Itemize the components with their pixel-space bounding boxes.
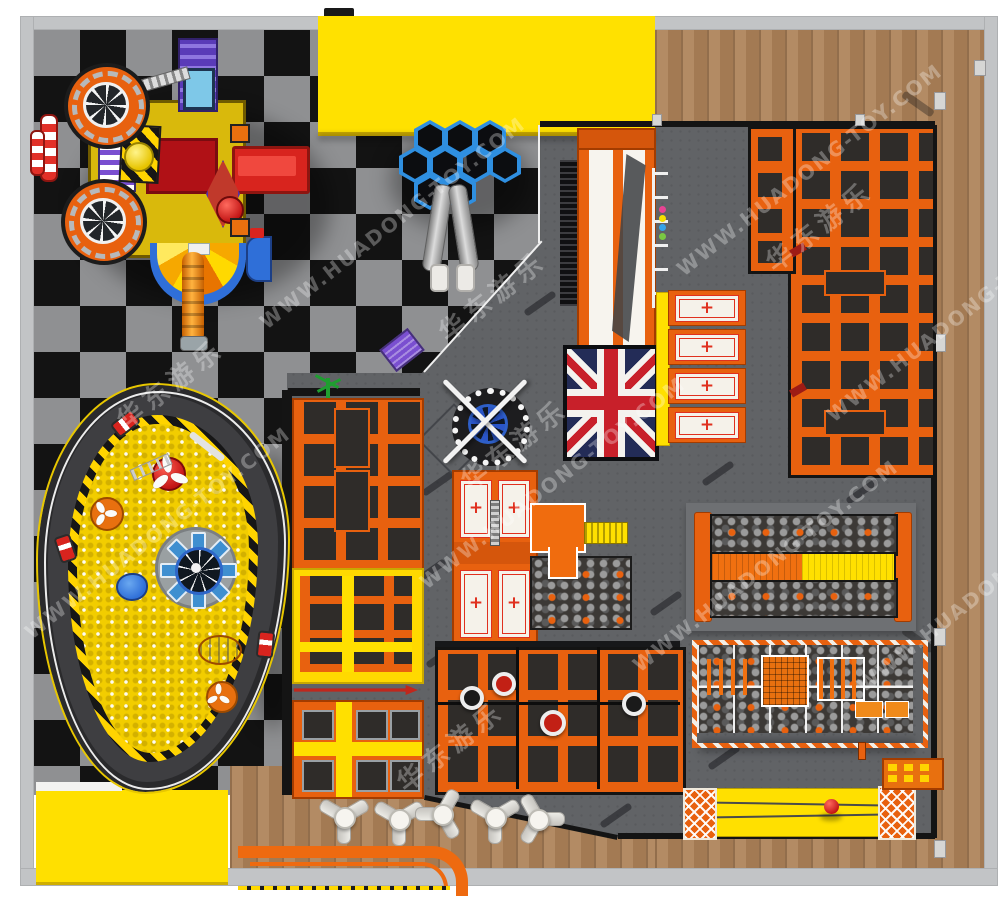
tube-cap — [180, 336, 208, 351]
fence-tick — [652, 172, 668, 175]
airbag-beds: + + + + — [452, 470, 538, 649]
wall-bed: + — [668, 290, 746, 326]
bed-surface: + — [675, 412, 739, 439]
court-line — [516, 647, 519, 789]
petal — [218, 694, 231, 705]
bed — [302, 710, 334, 740]
fence — [652, 168, 655, 308]
section-b-beds — [300, 576, 412, 672]
petal — [151, 472, 171, 490]
obstacle-pad — [855, 701, 883, 718]
cargo-net-panel — [761, 655, 809, 707]
foam-lane — [710, 514, 898, 556]
fence-tick — [652, 244, 668, 247]
wall-right — [984, 16, 998, 886]
jump-platform-stem — [548, 547, 578, 579]
yellow-cross-bar — [342, 576, 354, 672]
edge-tab — [855, 114, 865, 126]
toddler-train-playground — [28, 30, 318, 350]
dodgeball — [540, 710, 566, 736]
yellow-cross-bar — [294, 742, 422, 756]
petal — [216, 684, 222, 695]
trampoline-bed — [758, 241, 782, 263]
ladder — [490, 500, 500, 546]
lane-section-c — [292, 700, 424, 799]
slab-boundary-line — [538, 125, 540, 243]
pillar — [934, 840, 946, 858]
wheel-spokes — [83, 82, 129, 128]
post — [858, 742, 866, 760]
bumper-pod — [116, 573, 148, 601]
trampoline-lane-strip — [282, 378, 422, 798]
fence-tick — [652, 268, 668, 271]
wall-bed: + — [668, 329, 746, 365]
table-top — [432, 804, 454, 826]
main-grid-wing — [748, 126, 796, 274]
long-bed — [334, 470, 370, 532]
airbag-bed: + — [498, 570, 530, 638]
mushroom-seat — [206, 681, 238, 713]
table-top — [528, 809, 550, 831]
long-bed — [334, 408, 370, 468]
mini-slide-flag — [250, 228, 264, 238]
trampoline-bed — [758, 173, 782, 197]
petal — [105, 510, 117, 517]
balloon — [659, 215, 666, 222]
battle-beam-orange — [710, 552, 804, 582]
edge-tab — [652, 114, 662, 126]
foam-pit — [530, 556, 632, 630]
bed — [356, 710, 388, 740]
dodgeball — [460, 686, 484, 710]
party-block — [36, 790, 228, 885]
block — [230, 218, 250, 237]
mushroom-seat — [90, 497, 124, 531]
jump-platform — [530, 503, 586, 553]
giant-drop-slide — [556, 126, 672, 461]
caterpillar-seat — [198, 635, 242, 665]
hanging-strips — [707, 659, 747, 695]
edge-bar — [288, 388, 420, 396]
go-kart — [256, 630, 276, 659]
platform-stairs — [584, 522, 628, 544]
ninja-obstacle-course — [692, 640, 928, 748]
slide-stairs — [560, 160, 577, 306]
pillar — [934, 628, 946, 646]
wall-bed: + — [668, 368, 746, 404]
balloon — [659, 206, 666, 213]
cafe-table — [514, 795, 560, 841]
union-jack-landing-mat — [563, 345, 659, 461]
bed — [390, 760, 420, 792]
airbag-bed: + — [460, 480, 492, 538]
monkey-bars — [817, 657, 865, 701]
table-top — [334, 807, 356, 829]
bed — [390, 710, 420, 740]
cafe-table — [375, 795, 421, 841]
zipline-ball-shadow — [820, 813, 842, 821]
trampoline-bed — [758, 137, 782, 161]
zipline-tower — [878, 786, 916, 840]
dodgeball — [492, 672, 516, 696]
table-top — [485, 807, 507, 829]
arrow-bar — [294, 683, 418, 697]
climbing-wall — [882, 758, 944, 790]
balloon — [659, 233, 666, 240]
long-trampoline-bed — [824, 410, 886, 436]
bed-surface: + — [675, 295, 739, 322]
airbag-wall-beds: + + + + — [656, 290, 746, 446]
mini-slide-exit — [246, 236, 272, 282]
obstacle-pad — [885, 701, 909, 718]
petal — [94, 513, 106, 527]
slide-top-platform — [577, 128, 656, 150]
airbag-bed: + — [460, 570, 492, 638]
lane-section-b — [292, 568, 424, 684]
bed — [356, 760, 388, 792]
climbing-holds-row — [888, 764, 936, 771]
striped-arch — [30, 130, 45, 176]
zipline-runway — [712, 788, 882, 837]
zipline-tower — [683, 788, 717, 840]
train-wheel-rear — [61, 179, 147, 265]
ball-pit-with-go-kart-track — [38, 385, 288, 792]
cafe-table — [418, 790, 464, 836]
playground-floorplan-render: + + + + — [0, 0, 1000, 907]
red-slide-lane — [238, 156, 296, 176]
tube-mouth — [430, 264, 449, 292]
bed-surface: + — [675, 373, 739, 400]
train-wheel-front — [64, 63, 150, 149]
pillar — [934, 92, 946, 110]
cafe-table — [471, 793, 517, 839]
petal — [206, 694, 219, 705]
dodgeball — [622, 692, 646, 716]
block — [230, 124, 250, 143]
carousel-hub — [191, 563, 201, 573]
wall-bed: + — [668, 407, 746, 443]
hazard-edge-line — [238, 886, 450, 890]
honeycomb-climber — [394, 112, 514, 302]
wheel-spokes — [80, 198, 126, 244]
tube-mouth — [456, 264, 475, 292]
long-trampoline-bed — [824, 270, 886, 296]
table-top — [389, 809, 411, 831]
zipline-ball — [824, 799, 839, 814]
cafe-table — [320, 793, 366, 839]
foam-pit-battle-beam — [686, 503, 916, 631]
bed-surface: + — [675, 334, 739, 361]
yellow-cross-bar — [300, 642, 412, 652]
foam-lane — [710, 578, 898, 618]
balloon — [659, 224, 666, 231]
climbing-holds-row — [888, 775, 936, 782]
trampoline-bed — [758, 209, 782, 233]
court-line — [597, 647, 600, 789]
curved-bench-inner — [250, 862, 448, 888]
battle-beam-yellow — [802, 552, 896, 582]
pillar — [974, 60, 986, 76]
yellow-ball — [124, 142, 154, 172]
airbag-bed: + — [498, 480, 530, 538]
tube-ladder-rungs — [182, 256, 204, 340]
fence-tick — [652, 196, 668, 199]
bed — [302, 760, 334, 792]
carousel — [155, 527, 237, 609]
